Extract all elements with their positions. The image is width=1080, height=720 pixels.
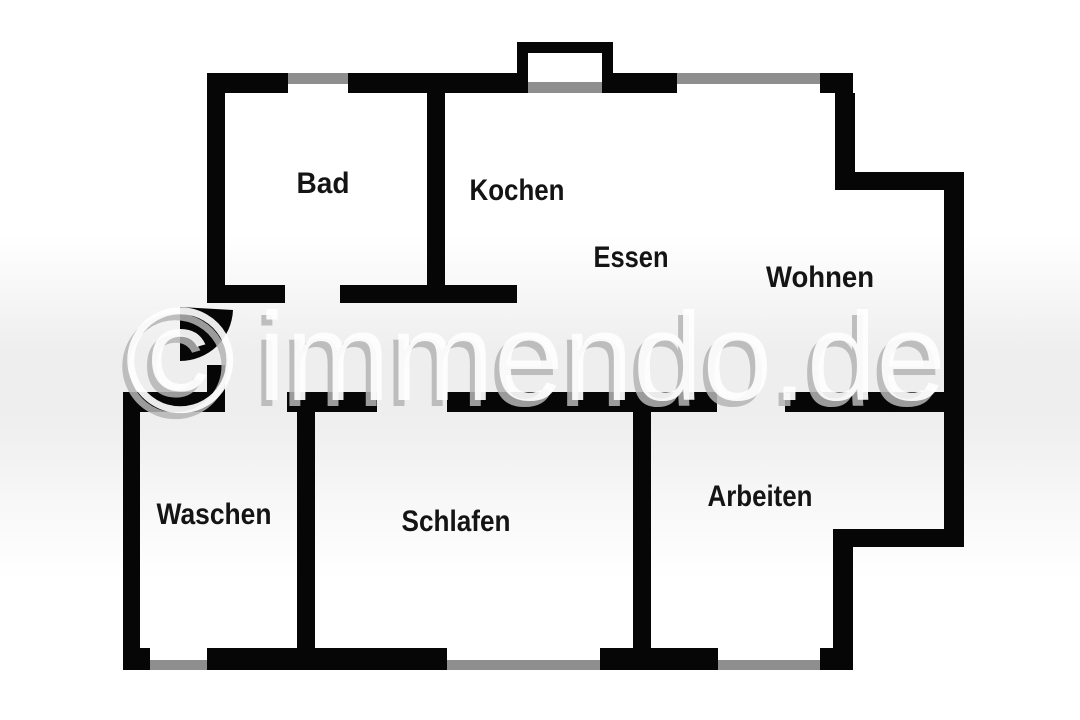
wall-segment xyxy=(602,42,613,93)
wall-segment xyxy=(633,410,651,650)
wall-segment xyxy=(833,529,964,547)
window-segment xyxy=(150,660,207,670)
wall-segment xyxy=(613,73,677,93)
window-segment xyxy=(718,660,820,670)
wall-segment xyxy=(600,648,718,670)
wall-segment xyxy=(517,42,613,53)
wall-segment xyxy=(517,42,528,93)
window-segment xyxy=(447,660,600,670)
window-segment xyxy=(677,73,820,84)
room-label-bad: Bad xyxy=(297,167,350,200)
room-label-waschen: Waschen xyxy=(157,498,272,531)
window-segment xyxy=(288,73,348,84)
watermark-text: immendo.de xyxy=(258,288,946,427)
wall-segment xyxy=(820,648,853,670)
copyright-symbol: © xyxy=(125,276,236,444)
wall-segment xyxy=(820,73,853,93)
floor-plan-svg: BadKochenEssenWohnenWaschenSchlafenArbei… xyxy=(0,0,1080,720)
wall-segment xyxy=(207,73,225,303)
room-label-arbeiten: Arbeiten xyxy=(708,480,813,513)
wall-segment xyxy=(348,73,517,93)
wall-segment xyxy=(427,93,445,293)
wall-segment xyxy=(944,190,964,547)
wall-segment xyxy=(140,648,150,670)
floor-plan-page: BadKochenEssenWohnenWaschenSchlafenArbei… xyxy=(0,0,1080,720)
room-label-kochen: Kochen xyxy=(470,174,565,207)
wall-segment xyxy=(297,410,315,670)
room-label-schlafen: Schlafen xyxy=(402,505,511,538)
wall-segment xyxy=(835,172,964,190)
room-label-essen: Essen xyxy=(594,241,669,274)
wall-segment xyxy=(207,648,447,670)
window-segment xyxy=(528,82,602,93)
